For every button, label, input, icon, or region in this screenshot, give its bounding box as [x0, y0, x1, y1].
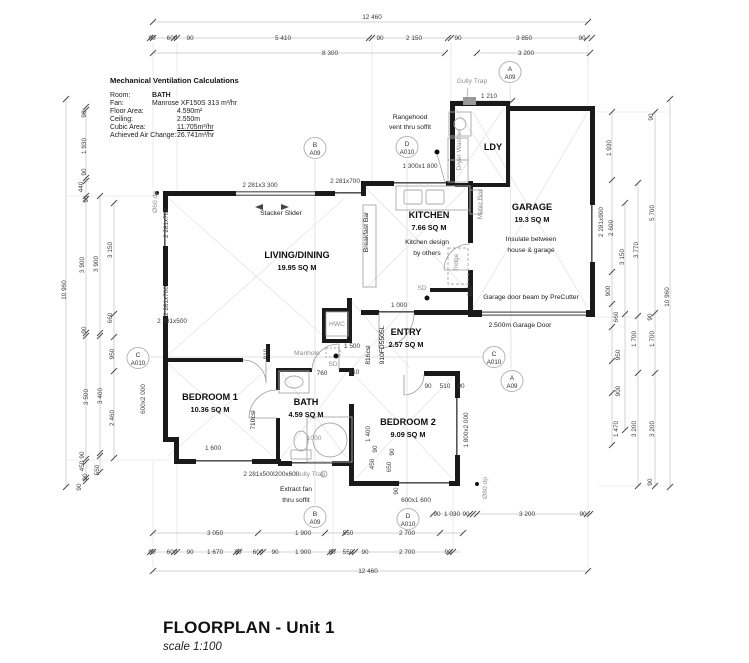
downpipe-80: [475, 482, 479, 486]
dimension-label: 2 460: [109, 410, 116, 426]
plan-label: HWC: [329, 321, 345, 328]
dimension-label: 90: [83, 195, 90, 203]
dimension-label: 550: [94, 464, 101, 475]
dimension-label: 450: [369, 458, 376, 469]
dimension-label: 5 700: [649, 205, 656, 221]
dimension-label: 90: [433, 511, 441, 518]
room-label: KITCHEN: [409, 210, 450, 220]
room-area: 2.57 SQ M: [389, 340, 424, 349]
plan-label: Manhole: [294, 350, 320, 357]
vent-calc-value: 11.705m³/hr: [177, 124, 214, 131]
plan-scale: scale 1:100: [163, 641, 335, 653]
plan-label: Breakfast Bar: [363, 211, 370, 252]
vent-calc-value: Manrose XF150S 313 m³/hr: [152, 100, 237, 107]
window-label: 1 300x1 800: [402, 163, 438, 170]
dimension-label: 3 900: [93, 256, 100, 272]
gully-trap-top: [463, 97, 476, 105]
room-label: LIVING/DINING: [264, 250, 329, 260]
vent-calc-row: Fan:Manrose XF150S 313 m³/hr: [110, 100, 330, 108]
dimension-label: 3 050: [207, 530, 223, 537]
vent-calc-row: Cubic Area:11.705m³/hr: [110, 124, 330, 132]
vent-calc-label: Floor Area:: [110, 108, 144, 115]
plan-label: house & garage: [507, 247, 555, 254]
vent-calc-label: Ceiling:: [110, 116, 133, 123]
marker-sheet: A09: [309, 519, 321, 526]
dimension-label: 550: [343, 530, 354, 537]
marker-letter: C: [492, 351, 497, 358]
dimension-label: 90: [372, 445, 379, 453]
room-label: LDY: [484, 142, 502, 152]
dimension-label: 1 900: [295, 549, 311, 556]
room-diagonals: [168, 108, 588, 478]
dimension-label: 2 700: [399, 549, 415, 556]
dimension-label: 90: [76, 483, 83, 491]
plan-label: Stacker Slider: [260, 210, 302, 217]
marker-letter: B: [313, 511, 318, 518]
dimension-label: 810: [467, 285, 474, 296]
dimension-label: 1 930: [81, 138, 88, 154]
floorplan-sheet: 12 46090600905 410902 150903 850908 3003…: [0, 0, 749, 663]
dimension-label: 90: [647, 313, 654, 321]
marker-sheet: A09: [309, 150, 321, 157]
dimension-label: 90: [389, 448, 396, 456]
dimension-label: 950: [109, 348, 116, 359]
dimension-label: 440: [78, 181, 85, 192]
ventilation-calculations: Mechanical Ventilation Calculations Room…: [110, 76, 330, 140]
dimension-label: 1 470: [613, 421, 620, 437]
dimension-label: 1 930: [606, 140, 613, 156]
room-area: 10.36 SQ M: [191, 405, 230, 414]
marker-letter: B: [313, 142, 318, 149]
marker-letter: A: [508, 66, 513, 73]
plan-label: fridge: [453, 253, 460, 270]
dimension-label: 3 200: [519, 511, 535, 518]
dimension-label: 3 900: [79, 257, 86, 273]
window-label: 2 281x900: [598, 207, 605, 237]
room-area: 19.3 SQ M: [515, 215, 550, 224]
dimension-label: 90: [462, 511, 470, 518]
vent-calc-rows: Room:BATHFan:Manrose XF150S 313 m³/hrFlo…: [110, 92, 330, 140]
window-label: 1 800x2 000: [463, 412, 470, 448]
plan-label: by others: [413, 250, 441, 257]
dimension-label: 90: [393, 487, 400, 495]
vent-calc-row: Floor Area:4.590m²: [110, 108, 330, 116]
dimension-label: 90: [454, 35, 462, 42]
marker-sheet: A010: [487, 359, 502, 366]
dimension-label: 550: [343, 549, 354, 556]
vent-calc-value: 2.550m: [177, 116, 200, 123]
plan-label: Ø80 dp: [482, 477, 489, 499]
dimension-label: 510: [440, 383, 451, 390]
dimension-label: 3 770: [633, 242, 640, 258]
bath-vanity: [279, 371, 309, 393]
dimension-label: 90: [444, 549, 452, 556]
room-label: GARAGE: [512, 202, 552, 212]
marker-letter: D: [405, 141, 410, 148]
dimension-label: 12 460: [362, 14, 382, 21]
plan-label: Ø60 dp: [152, 191, 159, 213]
dimension-label: 1 000: [391, 302, 407, 309]
dimension-label: 90: [148, 549, 156, 556]
smoke-detector-entry: [425, 296, 430, 301]
dimension-label: 3 400: [97, 388, 104, 404]
rangehood-vent-dot: [435, 150, 440, 155]
laundry-tub-bowl: [454, 118, 466, 130]
room-area: 7.66 SQ M: [412, 223, 447, 232]
dimension-label: 12 460: [358, 568, 378, 575]
plan-label: Gully Trap: [295, 471, 326, 478]
vent-calc-row: Room:BATH: [110, 92, 330, 100]
dimension-label: 90: [579, 511, 587, 518]
dimension-label: 760: [317, 370, 328, 377]
dimension-label: 90: [148, 35, 156, 42]
window-label: 2 281x700: [163, 286, 170, 316]
smoke-detector-hall: [334, 354, 339, 359]
dimension-label: 90: [648, 113, 655, 121]
dimension-label: 1 400: [365, 426, 372, 442]
vent-calc-title: Mechanical Ventilation Calculations: [110, 76, 330, 85]
dimension-label: 90: [328, 549, 336, 556]
marker-letter: D: [406, 513, 411, 520]
marker-sheet: A09: [504, 74, 516, 81]
room-area: 9.09 SQ M: [391, 430, 426, 439]
dimension-label: 1 700: [649, 331, 656, 347]
plan-label: SD: [417, 285, 426, 292]
dimension-label: 90: [361, 549, 369, 556]
vent-calc-value: BATH: [152, 92, 171, 99]
vent-calc-label: Cubic Area:: [110, 124, 146, 131]
plan-label: 1000: [307, 435, 322, 442]
dimension-label: 650: [386, 461, 393, 472]
dimension-label: 1 500: [344, 343, 360, 350]
dimension-label: 90: [186, 549, 194, 556]
vent-calc-label: Achieved Air Change:: [110, 132, 176, 139]
dimension-label: 950: [615, 349, 622, 360]
dimension-label: 810: [349, 369, 360, 376]
marker-sheet: A010: [401, 521, 416, 528]
room-label: BATH: [294, 397, 319, 407]
room-label: ENTRY: [391, 327, 422, 337]
dimension-label: 5 410: [275, 35, 291, 42]
plan-label: Meter Box: [477, 188, 484, 219]
dimension-label: 3 500: [83, 389, 90, 405]
dimension-label: 90: [186, 35, 194, 42]
plan-label: 816csl: [365, 345, 372, 365]
marker-letter: A: [510, 375, 515, 382]
plan-label: Garage door beam by PreCutter: [483, 294, 579, 301]
dimension-label: 90: [79, 451, 86, 459]
dimension-label: 600: [253, 549, 264, 556]
dimension-label: 90: [578, 35, 586, 42]
window-label: 2 281x700: [163, 208, 170, 238]
vent-calc-value: 26.741m³/hr: [177, 132, 214, 139]
dimension-label: 90: [457, 383, 465, 390]
window-label: 600x1 600: [401, 497, 431, 504]
dimension-label: 2 700: [399, 530, 415, 537]
plan-label: vent thru soffit: [389, 124, 431, 131]
dimension-label: 900: [615, 385, 622, 396]
dimension-label: 600: [167, 549, 178, 556]
gully-leader: [467, 88, 468, 97]
plan-title: FLOORPLAN - Unit 1: [163, 618, 335, 638]
room-area: 19.95 SQ M: [278, 263, 317, 272]
plan-label: 910FD5505L: [379, 325, 386, 364]
bedroom1-door-arc: [243, 360, 266, 383]
plan-label: 710csl: [250, 410, 257, 430]
marker-sheet: A010: [131, 360, 146, 367]
window-label: 2 281x500: [157, 318, 187, 325]
dimension-label: 600: [167, 35, 178, 42]
plan-label: Extract fan: [280, 486, 312, 493]
title-block: FLOORPLAN - Unit 1 scale 1:100: [163, 618, 335, 653]
dimension-label: 90: [81, 168, 88, 176]
dimension-label: 3 150: [619, 249, 626, 265]
plan-label: thru soffit: [282, 497, 310, 504]
dimension-label: 900: [605, 285, 612, 296]
dimension-label: 8 300: [322, 50, 338, 57]
window-label: 600x2 000: [140, 384, 147, 414]
dimension-label: 1 210: [481, 93, 497, 100]
dimension-label: 90: [234, 549, 242, 556]
marker-sheet: A010: [400, 149, 415, 156]
vent-calc-row: Ceiling:2.550m: [110, 116, 330, 124]
dimension-label: 90: [81, 326, 88, 334]
rangehood-leader: [437, 154, 445, 182]
dimension-label: 1 900: [295, 530, 311, 537]
dimension-label: 90: [424, 383, 432, 390]
dimension-label: 3 150: [107, 242, 114, 258]
window-label: 2 281x700: [330, 178, 360, 185]
dimension-label: 3 200: [649, 421, 656, 437]
dimension-label: 660: [107, 312, 114, 323]
dimension-label: 1 670: [207, 549, 223, 556]
plan-label: 2.500m Garage Door: [489, 322, 553, 329]
marker-sheet: A09: [506, 383, 518, 390]
dimension-label: 2 600: [608, 220, 615, 236]
dimension-label: 810: [263, 348, 270, 359]
dimension-label: 90: [82, 473, 89, 481]
plan-label: Rangehood: [393, 114, 428, 121]
window-label: 2 281x500l: [243, 471, 274, 478]
dimension-label: 1 700: [631, 331, 638, 347]
dimension-label: 90: [81, 110, 88, 118]
dimension-label: 3 850: [516, 35, 532, 42]
plan-label: Gully Trap: [457, 78, 488, 85]
marker-letter: C: [136, 352, 141, 359]
plan-label: Dryer Washer: [456, 129, 463, 171]
plan-label: Kitchen design: [405, 239, 449, 246]
dimension-label: 3 200: [631, 421, 638, 437]
plan-label: SD: [328, 361, 337, 368]
dimension-label: 450: [79, 460, 86, 471]
dimension-label: 1 030: [444, 511, 460, 518]
vent-calc-label: Fan:: [110, 100, 124, 107]
dimension-label: 1 600: [205, 445, 221, 452]
dimension-label: 90: [271, 549, 279, 556]
window-label: 2 281x3 300: [242, 182, 278, 189]
room-label: BEDROOM 1: [182, 392, 238, 402]
dimension-label: 90: [647, 478, 654, 486]
dimension-label: 90: [376, 35, 384, 42]
dimension-label: 10 960: [664, 287, 671, 307]
vent-calc-row: Achieved Air Change:26.741m³/hr: [110, 132, 330, 140]
vent-calc-label: Room:: [110, 92, 130, 99]
dimension-label: 660: [613, 311, 620, 322]
room-area: 4.59 SQ M: [289, 410, 324, 419]
vent-calc-value: 4.590m²: [177, 108, 202, 115]
dimension-label: 10 960: [61, 280, 68, 300]
dimension-label: 2 150: [406, 35, 422, 42]
plan-label: Insulate between: [506, 236, 557, 243]
kitchen-sink-right: [426, 190, 444, 204]
dimension-label: 3 200: [518, 50, 534, 57]
room-label: BEDROOM 2: [380, 417, 436, 427]
vanity-basin: [285, 376, 303, 388]
